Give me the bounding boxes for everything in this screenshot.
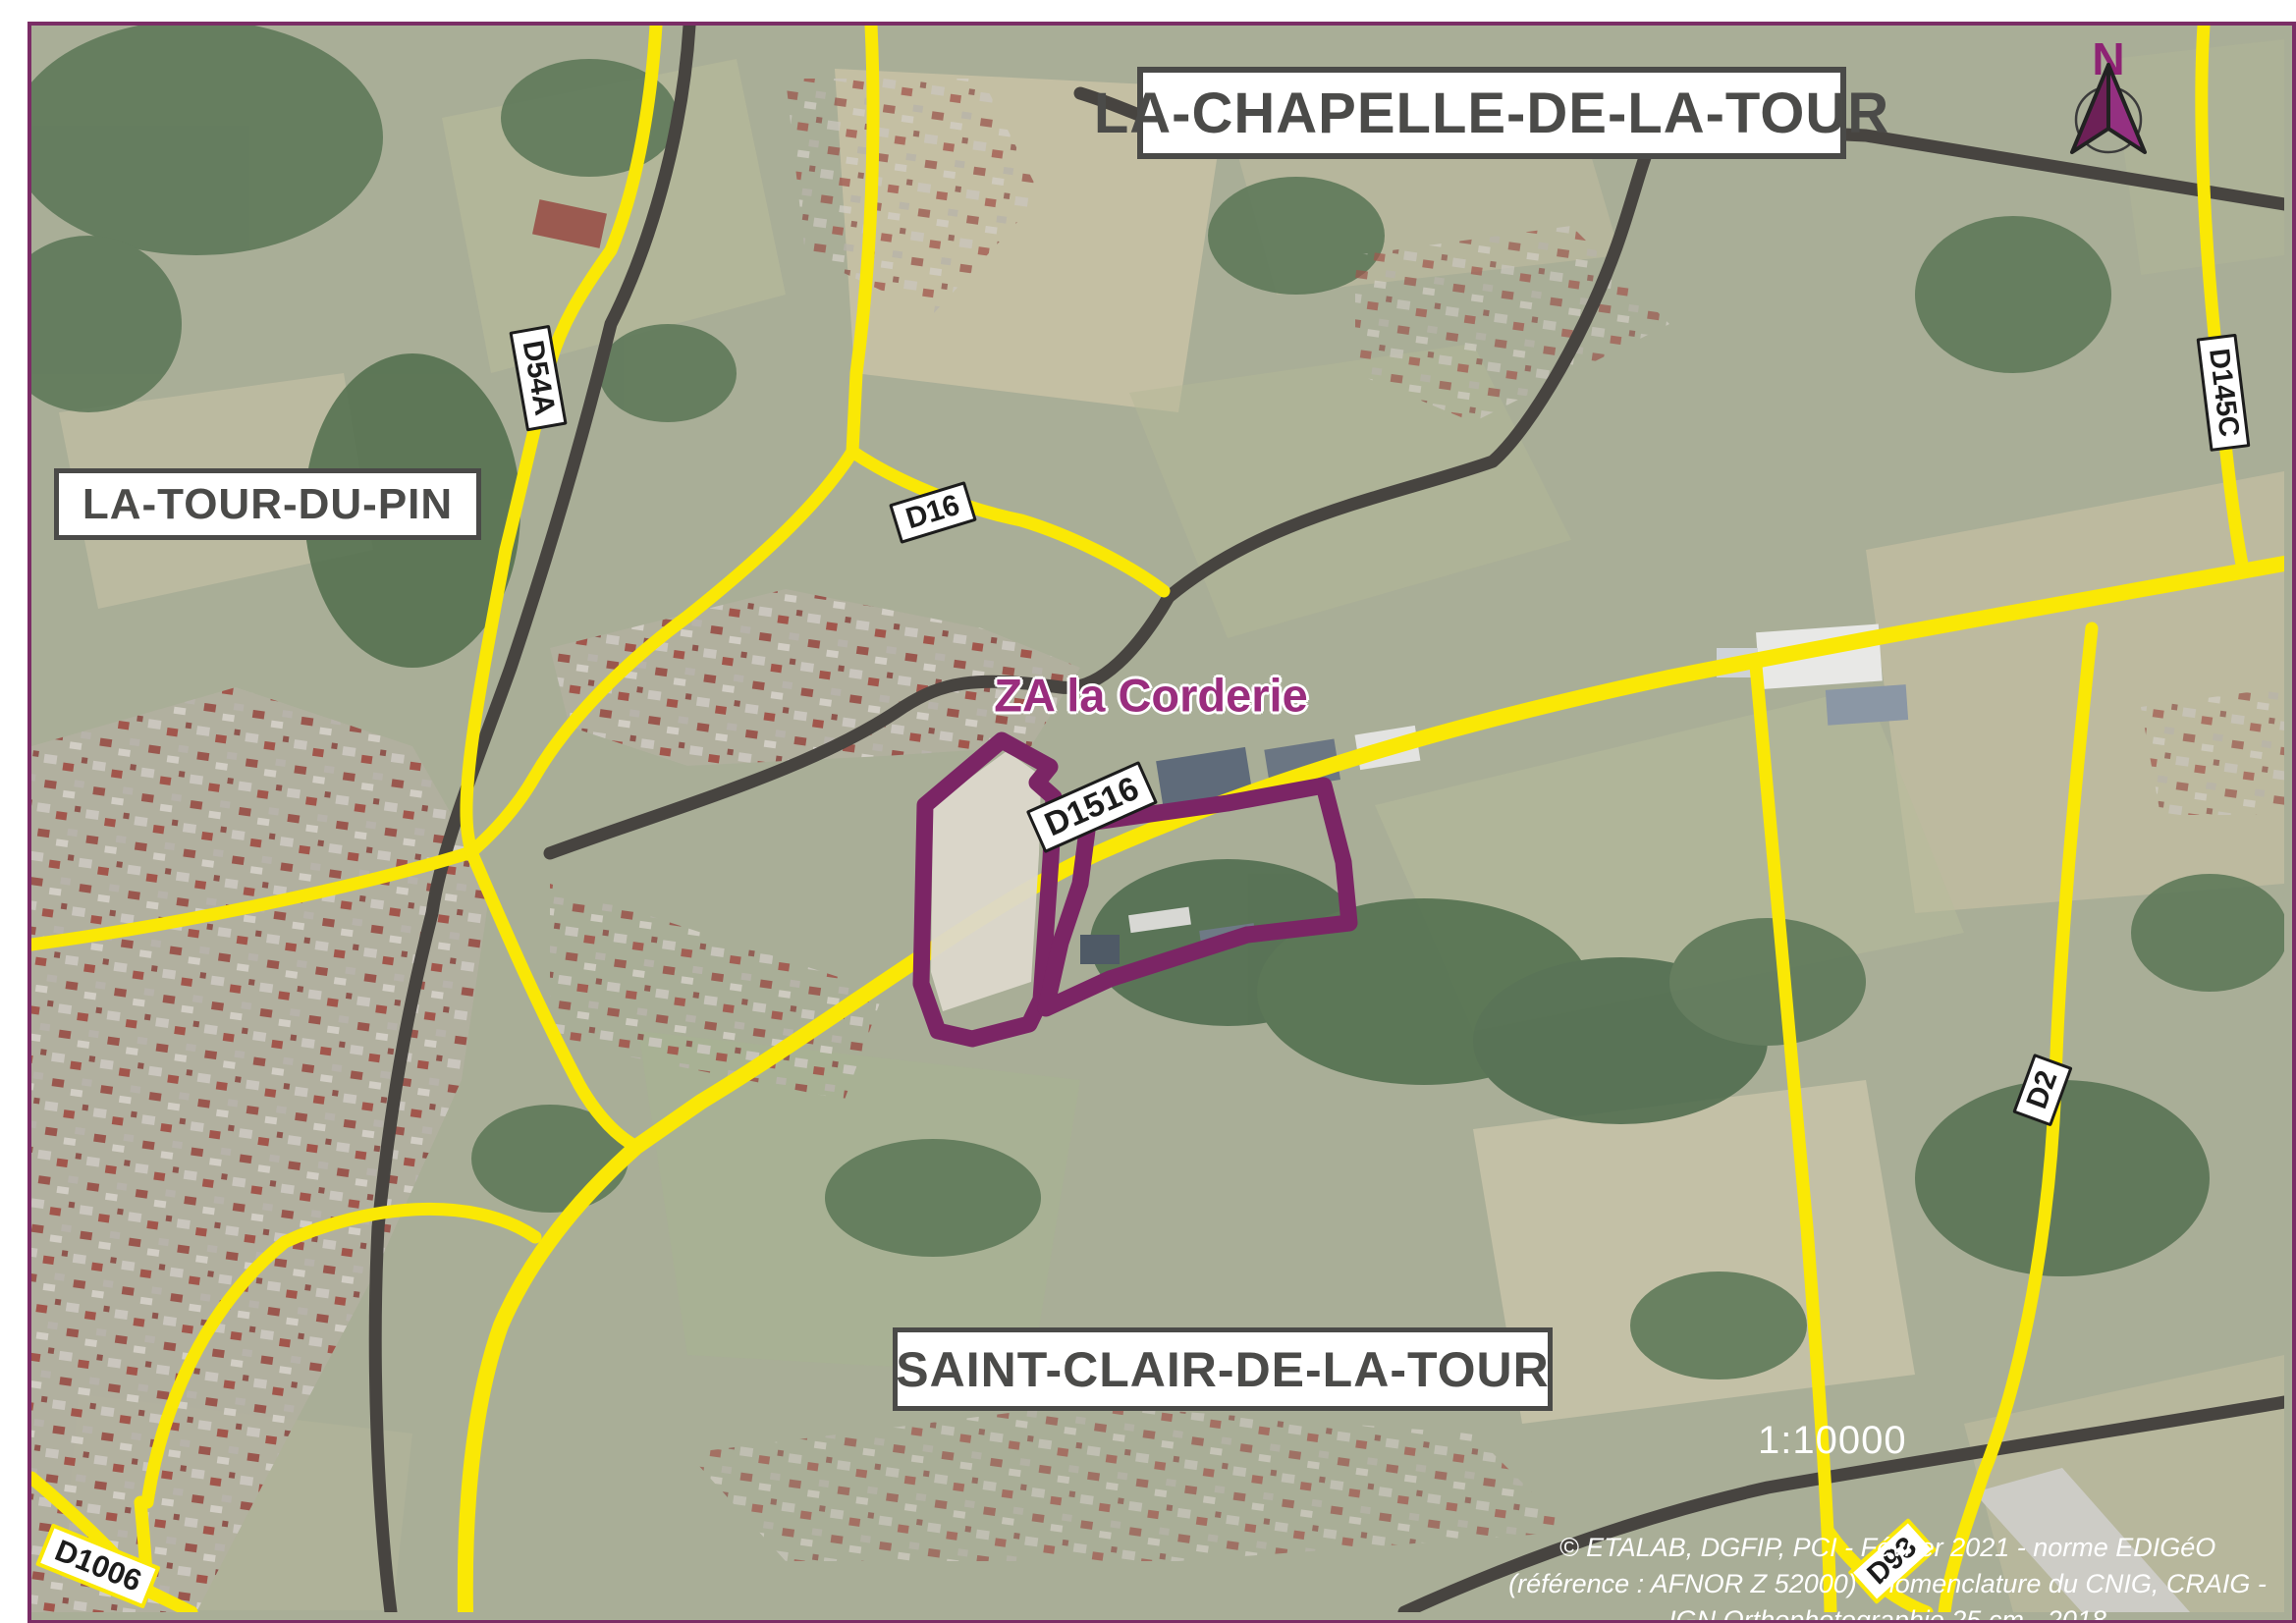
town-label-text: LA-CHAPELLE-DE-LA-TOUR	[1094, 81, 1889, 146]
attribution-line-2: (référence : AFNOR Z 52000) - nomenclatu…	[1508, 1566, 2267, 1602]
town-label-text: LA-TOUR-DU-PIN	[82, 480, 453, 529]
map-export-screenshot: N LA-CHAPELLE-DE-LA-TOUR LA-TOUR-DU-PIN …	[0, 0, 2296, 1623]
map-canvas[interactable]: N LA-CHAPELLE-DE-LA-TOUR LA-TOUR-DU-PIN …	[27, 22, 2296, 1623]
town-label-la-chapelle-de-la-tour: LA-CHAPELLE-DE-LA-TOUR	[1137, 67, 1846, 159]
zone-label-za-la-corderie: ZA la Corderie	[994, 669, 1308, 723]
attribution-line-1: © ETALAB, DGFIP, PCI - Février 2021 - no…	[1508, 1530, 2267, 1566]
town-label-la-tour-du-pin: LA-TOUR-DU-PIN	[54, 468, 481, 540]
town-label-saint-clair-de-la-tour: SAINT-CLAIR-DE-LA-TOUR	[893, 1327, 1553, 1411]
attribution-block: © ETALAB, DGFIP, PCI - Février 2021 - no…	[1508, 1530, 2267, 1623]
attribution-line-3: IGN Orthophotographie 25 cm - 2018	[1508, 1602, 2267, 1623]
scale-text: 1:10000	[1758, 1419, 1907, 1463]
town-label-text: SAINT-CLAIR-DE-LA-TOUR	[896, 1341, 1549, 1398]
